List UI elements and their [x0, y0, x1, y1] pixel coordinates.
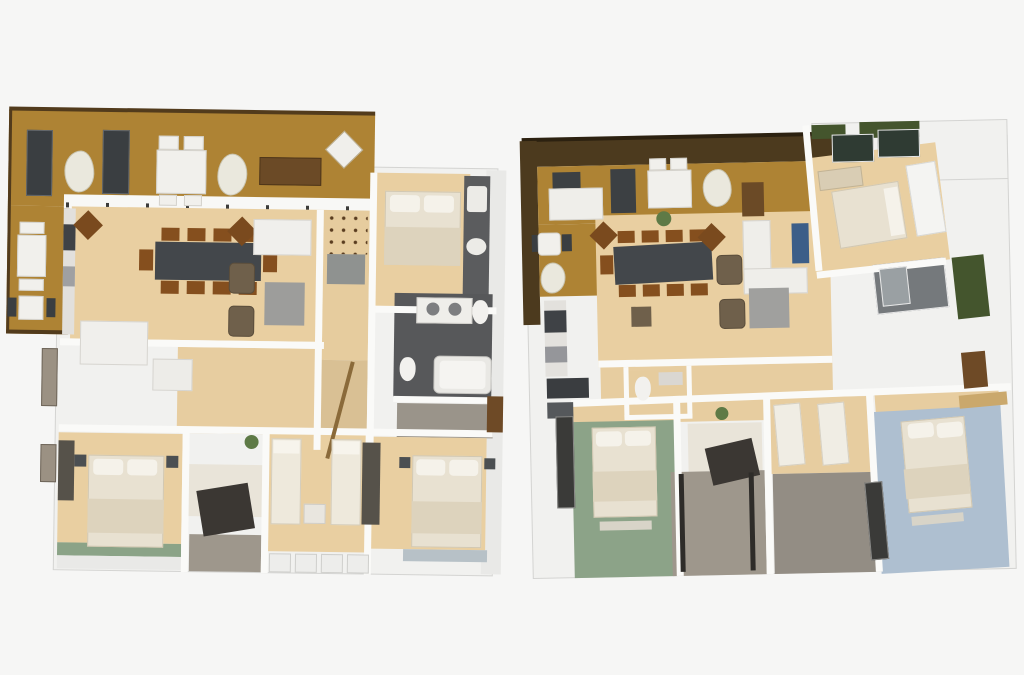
- terrace-table: [156, 150, 207, 195]
- storage-cubby-2: [295, 554, 317, 573]
- wall-wc-right: [686, 366, 692, 418]
- bed-green-mat: [600, 521, 652, 531]
- bed1-pillow: [390, 195, 420, 212]
- ac-unit-2: [40, 444, 57, 482]
- dining-chair: [618, 231, 635, 243]
- terrace-edge-bottom: [6, 330, 68, 335]
- bed-blue-pillow: [907, 422, 934, 439]
- dining-chair-3: [666, 230, 683, 242]
- pouf: [631, 306, 651, 326]
- bed2-pillow-2: [127, 459, 157, 475]
- daybed-2: [817, 402, 850, 466]
- terrace-chair-4: [184, 195, 202, 206]
- bed1-pillow-2: [424, 195, 454, 212]
- hall-floor: [177, 347, 324, 435]
- terrace-bench: [259, 157, 321, 186]
- storage-cubby: [269, 553, 291, 572]
- bed-blue-pillow-2: [936, 421, 963, 438]
- sofa-bottom: [80, 321, 149, 366]
- terrace-table: [647, 170, 692, 209]
- armchair: [229, 263, 255, 294]
- twin-bed-2-pillow: [333, 441, 359, 454]
- bed-blue-blanket: [904, 464, 970, 500]
- dining-chair-2: [642, 230, 659, 242]
- dining-chair-7: [667, 284, 684, 296]
- nightstand: [74, 454, 86, 466]
- bed-green-pillow: [596, 431, 622, 447]
- storage-cubby-3: [321, 554, 343, 573]
- kitchen-appliance: [63, 224, 75, 250]
- terrace-chair-3: [159, 195, 177, 206]
- floor-plan-left: [3, 102, 510, 581]
- terrace-chair: [159, 136, 179, 150]
- area-rug: [264, 282, 305, 326]
- corner-chair-dark: [7, 298, 16, 317]
- bath-sink: [466, 238, 486, 255]
- bedroom2-ledge: [57, 555, 181, 570]
- blue-runner: [791, 223, 809, 263]
- bed2-pillow: [93, 459, 123, 475]
- vanity-sink-2: [448, 303, 461, 316]
- patio-table: [538, 232, 561, 255]
- nightstand-4: [484, 458, 495, 469]
- bed-green-pillow-2: [625, 431, 651, 447]
- floor-plans-render-canvas: [0, 0, 1024, 675]
- dining-chair-9: [139, 249, 153, 270]
- nightstand-2: [166, 456, 178, 468]
- dining-chair-5: [161, 281, 179, 294]
- bathtub-inner: [439, 361, 485, 390]
- wall-wc-left: [623, 367, 629, 419]
- storage-cubby-4: [347, 554, 369, 573]
- nightstand-3: [399, 457, 410, 468]
- wardrobe-dark-2: [361, 442, 380, 524]
- kitchen-island: [547, 378, 589, 399]
- dining-chair-9: [600, 255, 613, 274]
- patio-chair-dark-2: [562, 234, 572, 251]
- dining-chair: [161, 228, 179, 241]
- green-roof-3: [952, 254, 991, 319]
- shower-tray: [467, 186, 487, 212]
- bed2-blanket: [87, 499, 163, 534]
- skylight: [832, 134, 875, 163]
- lounge-chair: [26, 130, 53, 196]
- area-rug: [749, 288, 790, 329]
- toilet: [635, 377, 651, 401]
- wc-vanity: [659, 372, 683, 385]
- armchair-2: [228, 306, 254, 337]
- door-brown: [487, 396, 504, 432]
- stair-shaft-dots: [325, 212, 368, 255]
- vanity: [416, 297, 472, 324]
- terrace-chair-2: [670, 158, 687, 170]
- hall-plant: [244, 435, 258, 449]
- twin-dresser: [303, 504, 325, 524]
- bed1-blanket: [384, 227, 461, 266]
- side-chair-2: [19, 279, 44, 291]
- stone-chair: [702, 169, 732, 208]
- sofa-top: [253, 219, 311, 256]
- terrace-sofa: [549, 187, 604, 220]
- door-brown: [961, 351, 988, 389]
- dining-table: [613, 242, 713, 285]
- stair-shaft-landing: [327, 254, 365, 285]
- dining-chair-5: [619, 285, 636, 297]
- corner-chair-dark-2: [46, 298, 55, 317]
- side-chair: [19, 222, 44, 234]
- terrace-chair-2: [184, 136, 204, 150]
- shower-glass: [879, 266, 911, 307]
- bedroom4-balcony: [403, 549, 487, 562]
- vanity-sink: [426, 302, 439, 315]
- dining-chair-8: [691, 283, 708, 295]
- dining-chair-6: [643, 284, 660, 296]
- terrace-chair: [649, 158, 666, 170]
- terrace-cabinet-dark: [610, 169, 636, 214]
- bed3-blanket: [411, 501, 481, 534]
- ac-unit: [41, 348, 58, 406]
- kitchen-appliance: [544, 310, 566, 332]
- bed3-pillow: [416, 459, 445, 475]
- daybed: [773, 403, 806, 467]
- skylight-2: [877, 129, 920, 158]
- bed3-pillow-2: [449, 460, 478, 476]
- kitchen-appliance-2: [545, 346, 567, 362]
- stone-chair: [64, 150, 95, 192]
- armchair-2: [719, 299, 746, 330]
- window-wall-dark: [555, 416, 575, 508]
- dining-chair-6: [187, 281, 205, 294]
- slat-terrace-floor: [773, 472, 877, 574]
- side-table: [17, 235, 47, 277]
- dining-chair-2: [187, 228, 205, 241]
- bed-green-blanket: [593, 470, 658, 501]
- wardrobe-dark: [58, 440, 75, 500]
- terrace-bench-brown: [742, 182, 765, 216]
- corner-table: [18, 296, 43, 320]
- twin-bed-pillow: [273, 440, 299, 453]
- concrete-landing: [189, 534, 262, 572]
- kitchen-appliance-2: [63, 266, 75, 286]
- sideboard: [152, 359, 192, 392]
- armchair: [716, 255, 743, 286]
- lounge-chair-2: [102, 130, 130, 194]
- floor-plan-right: [515, 107, 1024, 585]
- stair-dark: [196, 483, 255, 537]
